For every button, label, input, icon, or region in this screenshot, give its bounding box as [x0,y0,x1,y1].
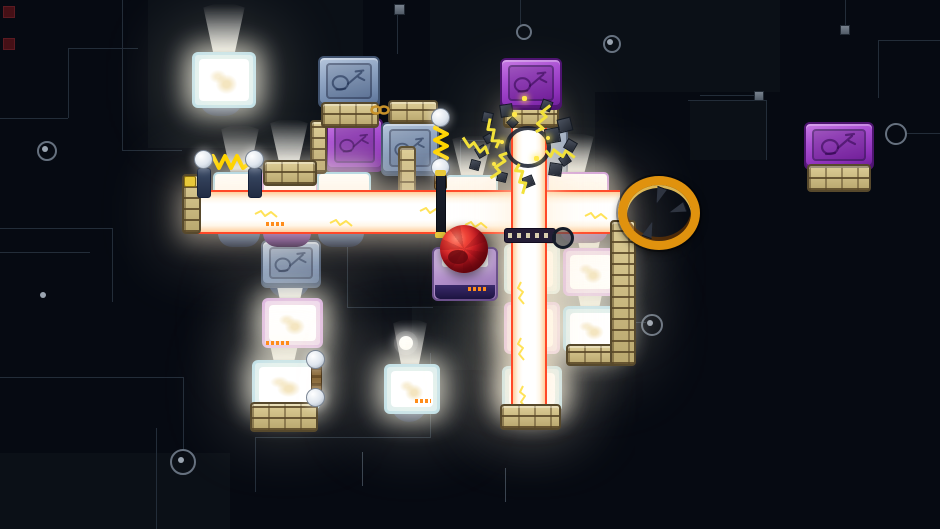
block-icon-panel [334,125,375,163]
lightbulb-doodle-icon [271,249,311,277]
circuit-trace [766,100,767,160]
glowing-lamp-face [199,59,249,101]
circuit-trace [347,247,348,307]
beam-crack [255,203,277,211]
circuit-trace [505,468,506,502]
rail-end-ring [552,227,574,249]
circuit-trace [0,377,183,378]
circuit-node-dot [178,457,184,463]
beam-crack [517,338,525,360]
circuit-trace [68,48,69,118]
glowing-lamp-face [570,255,612,289]
circuit-node-dot [607,39,613,45]
lightbulb-doodle-icon [328,65,370,97]
icon-block-lower-left-blue[interactable] [261,240,321,288]
circuit-trace [255,437,431,438]
ring-claw [640,219,658,239]
circuit-square [394,4,405,15]
pole-bulb-bottom [306,388,325,407]
burst-debris [548,162,563,177]
circuit-trace [905,133,940,134]
circuit-trace [700,95,756,96]
brick-base [250,402,318,432]
endcap-chip [184,176,196,187]
red-ball-player[interactable] [440,225,488,273]
circuit-node-dot [40,292,46,298]
brick-pillar-mid [398,146,416,196]
circuit-trace [0,118,68,119]
circuit-square [754,91,764,101]
ring-claw [667,200,687,218]
bottom-center-lit[interactable] [384,364,440,414]
block-icon-panel [326,63,372,99]
circuit-trace [520,0,521,26]
orange-tick-marker [266,341,290,345]
circuit-trace [362,452,363,486]
chain-link [370,101,390,113]
glowing-lamp-face [570,313,614,345]
lightbulb-doodle-icon [336,127,373,161]
orange-tick-marker [415,399,431,403]
orange-tick-marker [266,222,284,226]
circuit-trace [347,307,433,308]
brick-base [500,404,561,430]
burst-spark [534,156,539,161]
spring-post [197,168,211,198]
circuit-trace [845,0,846,27]
lightbulb-doodle-icon [814,131,864,159]
lightbulb-doodle-icon [510,67,552,99]
icon-block-far-right-purple[interactable] [804,122,874,170]
beam-crack [330,212,352,220]
burst-spark [492,162,496,166]
circuit-trace [878,40,879,98]
burst-spark [546,136,550,140]
spring-bulb [194,150,213,169]
circuit-trace [122,0,123,150]
circuit-trace [255,437,256,492]
brick-platform-on-beam [263,160,317,186]
circuit-trace [112,228,113,302]
circuit-node-ring [885,123,907,145]
beam-separator-bar [436,172,446,236]
circuit-trace [397,14,398,54]
beam-crack [517,282,525,304]
lamp-block-top-left[interactable] [192,52,256,108]
background-patch [690,100,766,160]
spring-bulb [431,108,450,127]
orange-tick-marker [468,287,488,291]
red-marker-square [3,6,15,18]
beam-crack [585,205,607,213]
goal-ring[interactable] [618,176,700,250]
ring-claw [650,185,668,205]
glowing-lamp-face [259,367,313,403]
spring-bulb [245,150,264,169]
circuit-trace [0,252,90,253]
burst-spark [522,96,527,101]
brick-base [807,164,871,192]
circuit-trace [0,228,112,229]
circuit-trace [183,377,184,451]
circuit-node-dot [42,146,48,152]
circuit-trace [68,48,138,49]
circuit-square [840,25,850,35]
block-icon-panel [812,129,866,161]
circuit-trace [122,150,182,151]
circuit-node-ring [516,24,532,40]
circuit-node-dot [647,320,653,326]
pole-bulb-top [306,350,325,369]
glowing-lamp-face [269,305,316,341]
burst-spark [500,140,504,144]
game-viewport [0,0,940,529]
circuit-trace [878,40,940,41]
beam-crack [465,214,487,222]
circuit-trace [156,428,157,529]
spring-post [248,168,262,198]
brick-pillar-right [610,220,636,366]
burst-spark [512,112,517,117]
block-icon-panel [508,65,554,101]
block-icon-panel [269,247,313,279]
dotted-rail [504,228,556,243]
light-cone [269,120,309,164]
red-marker-square [3,38,15,50]
